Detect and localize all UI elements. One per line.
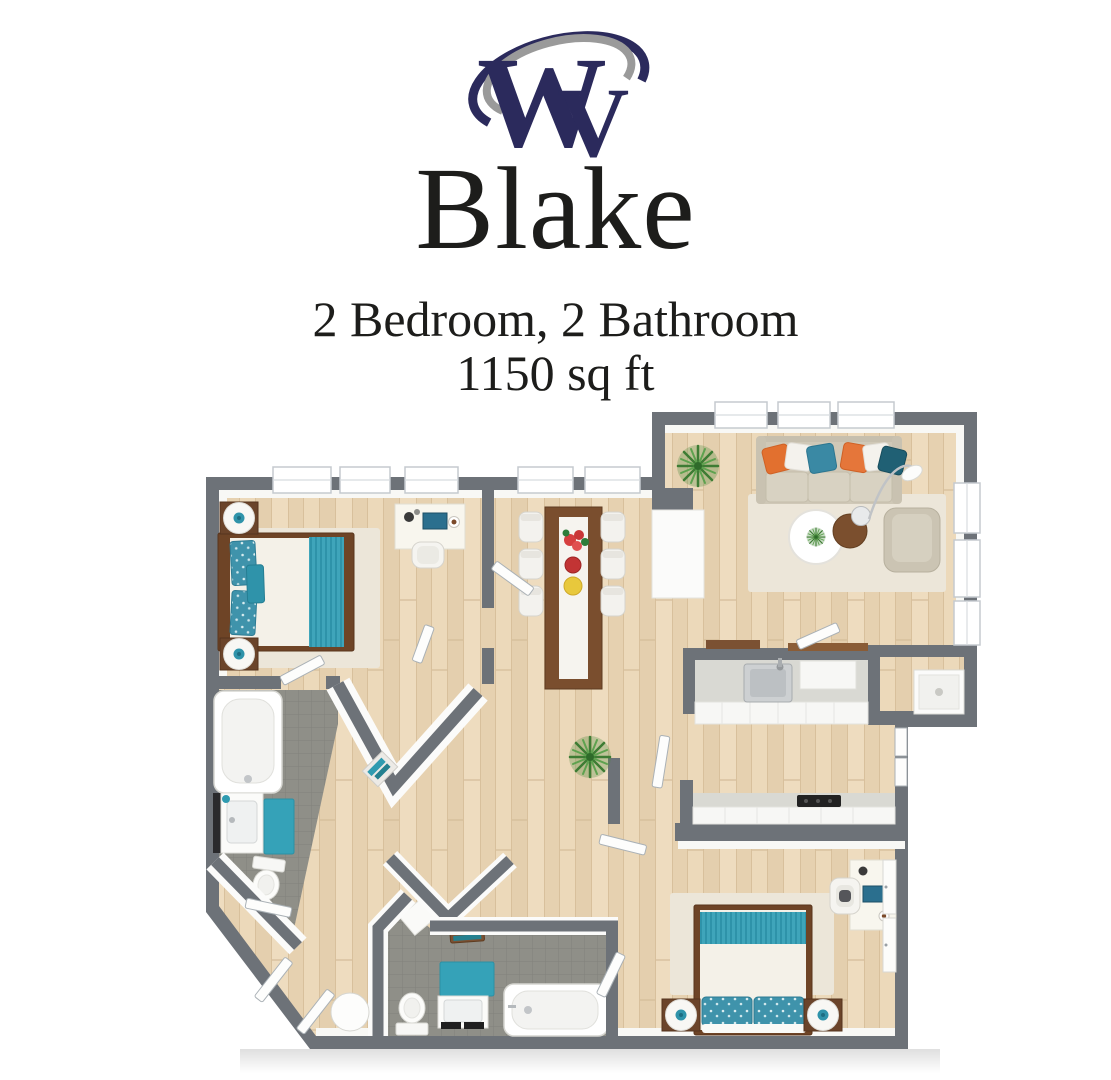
dining-chair bbox=[601, 586, 625, 616]
wall-face bbox=[678, 841, 905, 849]
laundry-closet bbox=[914, 670, 964, 714]
wall bbox=[213, 676, 281, 689]
dishwasher bbox=[800, 661, 856, 689]
plan-area: 1150 sq ft bbox=[0, 348, 1111, 398]
entry-closet-cap bbox=[652, 488, 693, 510]
kitchen-sink bbox=[744, 658, 792, 702]
nightstand bbox=[662, 999, 700, 1031]
table-plant bbox=[807, 528, 826, 547]
desk-chair-1 bbox=[412, 542, 444, 568]
wall bbox=[683, 648, 695, 714]
wv-logo: W V bbox=[465, 6, 665, 158]
lamp-base bbox=[852, 507, 871, 526]
fruit-plate bbox=[564, 577, 582, 595]
nightstand bbox=[220, 638, 258, 670]
dining-chair bbox=[601, 549, 625, 579]
vanity-sink-2 bbox=[438, 996, 488, 1029]
bathtub-1 bbox=[214, 691, 282, 793]
bath-mat-2 bbox=[440, 962, 494, 996]
dining-chair bbox=[519, 549, 543, 579]
toilet-2 bbox=[396, 993, 428, 1035]
vanity-sink-1 bbox=[213, 793, 263, 853]
drop-shadow bbox=[240, 1049, 940, 1073]
bed-1 bbox=[218, 533, 354, 651]
wall bbox=[482, 648, 494, 684]
pillow-dark-teal bbox=[877, 445, 907, 475]
cabinet-fronts bbox=[695, 702, 868, 724]
round-entry-table bbox=[331, 993, 369, 1031]
fruit-bowl bbox=[565, 557, 581, 573]
wall bbox=[482, 490, 494, 608]
wall bbox=[608, 758, 620, 824]
desk-chair-2 bbox=[830, 878, 860, 914]
door-panel bbox=[895, 758, 907, 786]
counter-top-2 bbox=[693, 793, 895, 807]
entry-cabinet bbox=[652, 510, 704, 598]
bath-mat-1 bbox=[264, 799, 294, 854]
armchair bbox=[884, 508, 940, 572]
door-panel bbox=[895, 728, 907, 756]
plan-title: Blake bbox=[0, 150, 1111, 268]
cabinet-fronts-2 bbox=[693, 807, 895, 824]
nightstand bbox=[804, 999, 842, 1031]
pillow-teal bbox=[806, 443, 837, 474]
bed-2 bbox=[694, 905, 812, 1035]
dining-chair bbox=[601, 512, 625, 542]
dining-chair bbox=[519, 512, 543, 542]
plan-subtitle: 2 Bedroom, 2 Bathroom bbox=[0, 294, 1111, 344]
open-shelf bbox=[706, 640, 760, 649]
nightstand bbox=[220, 502, 258, 534]
sofa bbox=[756, 436, 908, 504]
bathtub-2 bbox=[504, 984, 608, 1036]
hall-plant bbox=[569, 736, 611, 778]
wall bbox=[680, 780, 693, 826]
bedroom-2-top-wall bbox=[675, 823, 908, 841]
floor-plan-page: W V Blake 2 Bedroom, 2 Bathroom 1150 sq … bbox=[0, 0, 1111, 1080]
